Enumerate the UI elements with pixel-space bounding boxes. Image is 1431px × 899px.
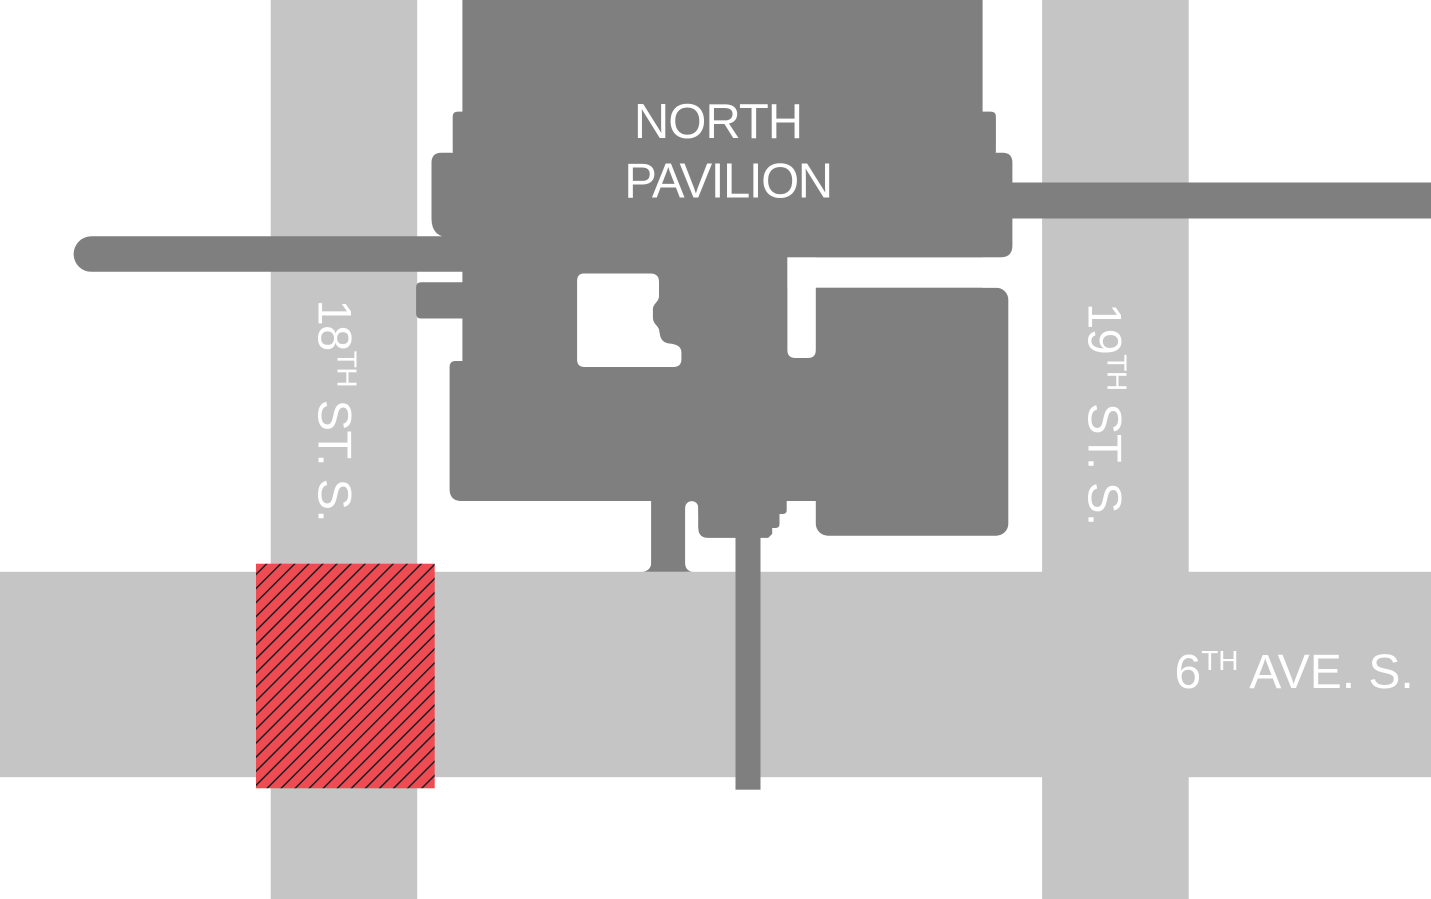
svg-text:19TH ST. S.: 19TH ST. S. <box>1079 303 1133 526</box>
svg-text:PAVILION: PAVILION <box>624 155 832 209</box>
svg-text:18TH ST. S.: 18TH ST. S. <box>309 300 363 523</box>
svg-text:NORTH: NORTH <box>634 95 802 149</box>
